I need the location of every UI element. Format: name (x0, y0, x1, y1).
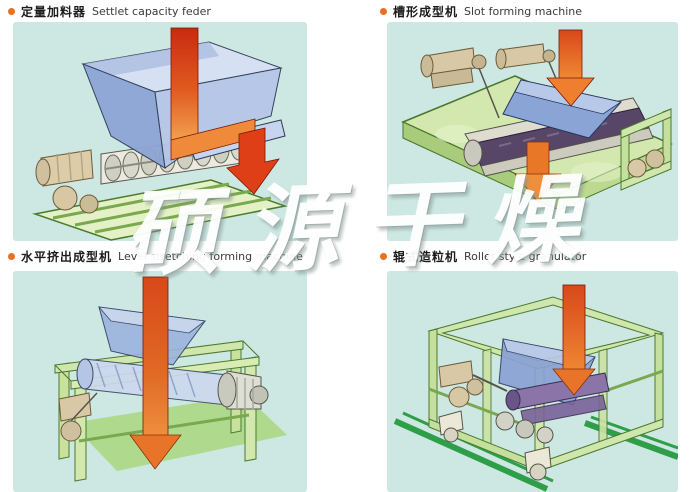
granulator-illustration (387, 271, 678, 492)
bullet-icon (8, 253, 15, 260)
illustration-panel-slot-forming-machine (387, 22, 678, 241)
section-header-settlet-capacity-feeder: 定量加料器 Settlet capacity feder (8, 4, 211, 19)
granulator-motor (439, 361, 507, 407)
section-label-zh: 槽形成型机 (393, 3, 458, 20)
section-header-roller-style-granulator: 辊式造粒机 Roller style granulator (380, 249, 586, 264)
slot-former-illustration (387, 22, 678, 241)
section-label-en: Settlet capacity feder (92, 5, 211, 18)
illustration-panel-settlet-capacity-feeder (13, 22, 307, 241)
feeder-motor (36, 150, 98, 213)
catalog-page: 定量加料器 Settlet capacity feder 槽形成型机 Slot … (0, 0, 690, 492)
section-label-en: Slot forming machine (464, 5, 582, 18)
section-label-en: Roller style granulator (464, 250, 586, 263)
bullet-icon (380, 253, 387, 260)
section-label-en: Level stretching forming machine (118, 250, 303, 263)
illustration-panel-level-stretching-forming-machine (13, 271, 307, 492)
feeder-illustration (13, 22, 307, 241)
section-header-slot-forming-machine: 槽形成型机 Slot forming machine (380, 4, 582, 19)
section-label-zh: 辊式造粒机 (393, 248, 458, 265)
section-label-zh: 定量加料器 (21, 3, 86, 20)
level-former-illustration (13, 271, 307, 492)
bullet-icon (380, 8, 387, 15)
section-label-zh: 水平挤出成型机 (21, 248, 112, 265)
section-header-level-stretching-forming-machine: 水平挤出成型机 Level stretching forming machine (8, 249, 303, 264)
bullet-icon (8, 8, 15, 15)
illustration-panel-roller-style-granulator (387, 271, 678, 492)
